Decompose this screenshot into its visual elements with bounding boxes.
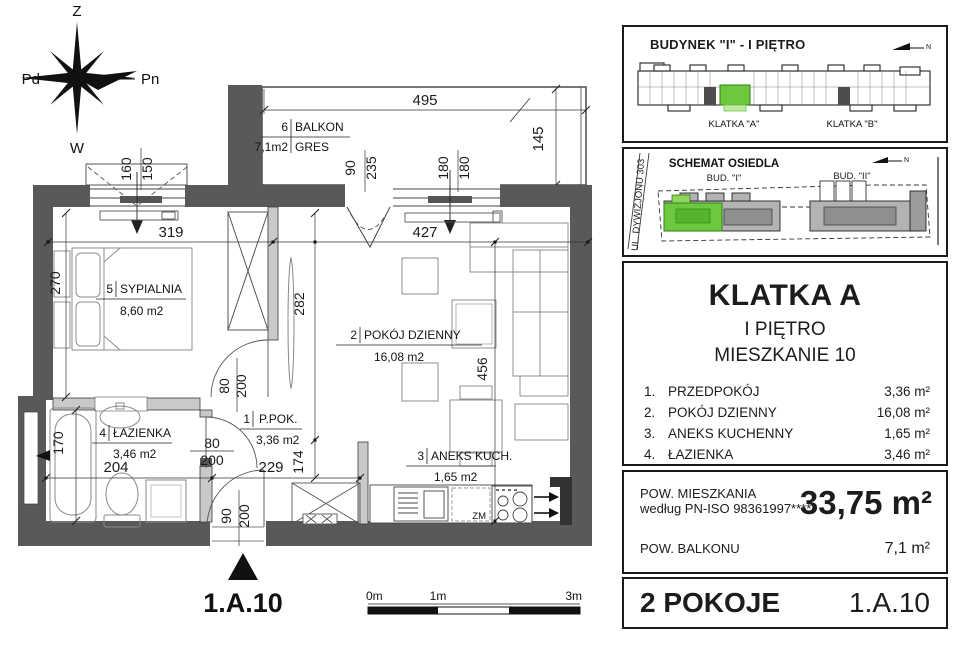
room-name: ANEKS KUCHENNY <box>668 423 884 444</box>
room-no: 1. <box>644 381 668 402</box>
building-title: BUDYNEK "I" - I PIĘTRO <box>650 37 805 52</box>
stairwell-b <box>838 87 850 105</box>
north-arrow-icon: N <box>890 39 932 58</box>
dim-balcony-width: 495 <box>412 92 437 109</box>
svg-text:160: 160 <box>118 157 134 181</box>
rooms-count: 2 POKOJE <box>640 587 780 619</box>
dim-entry-90: 90 <box>218 508 234 524</box>
balcony-area-value: 7,1 m² <box>885 540 930 558</box>
svg-text:P.POK.: P.POK. <box>259 412 297 426</box>
balcony-door-opening <box>345 184 500 208</box>
balcony-pillar <box>228 85 262 187</box>
room-area: 3,36 m² <box>884 381 930 402</box>
bud2-label: BUD. "II" <box>833 171 870 182</box>
highlighted-balcony <box>724 105 746 111</box>
svg-text:SYPIALNIA: SYPIALNIA <box>120 282 182 296</box>
dim-bath-door-200: 200 <box>200 452 224 468</box>
building-footprint-map: KLATKA "A" KLATKA "B" <box>632 57 938 133</box>
dim-270: 270 <box>47 271 63 295</box>
room-label-sypialnia: 5 SYPIALNIA 8,60 m2 <box>96 281 186 318</box>
svg-text:ŁAZIENKA: ŁAZIENKA <box>113 426 171 440</box>
svg-text:90: 90 <box>342 160 358 176</box>
dim-bedroom-door-80: 80 <box>216 378 232 394</box>
entrance-marker-icon <box>228 553 258 580</box>
scale-0m: 0m <box>366 589 383 603</box>
estate-section: SCHEMAT OSIEDLA N UL. DYWIZJONU 303 BUD.… <box>622 147 948 257</box>
stairwell-a <box>704 87 716 105</box>
room-list-item: 3. ANEKS KUCHENNY 1,65 m² <box>644 423 930 444</box>
svg-text:1: 1 <box>243 412 250 426</box>
estate-title: SCHEMAT OSIEDLA <box>669 158 779 170</box>
dim-229: 229 <box>258 459 283 476</box>
svg-text:150: 150 <box>139 157 155 181</box>
room-area: 3,46 m² <box>884 444 930 465</box>
bud2-shape <box>810 181 926 231</box>
dim-319: 319 <box>158 224 183 241</box>
compass-pd: Pd <box>22 71 40 88</box>
svg-text:5: 5 <box>106 282 113 296</box>
klatka-b-label: KLATKA "B" <box>827 119 878 130</box>
dim-204: 204 <box>103 459 128 476</box>
unit-section: KLATKA A I PIĘTRO MIESZKANIE 10 1. PRZED… <box>622 261 948 466</box>
unit-code: 1.A.10 <box>849 587 930 619</box>
scale-1m: 1m <box>430 589 447 603</box>
room-label-aneks: 3 ANEKS KUCH. 1,65 m2 <box>406 448 512 484</box>
room-name: POKÓJ DZIENNY <box>668 402 877 423</box>
dim-balcony-depth: 145 <box>530 126 547 151</box>
bathroom-window-slot <box>24 412 38 504</box>
compass-w: W <box>70 140 85 157</box>
room-num: 6 <box>281 120 288 134</box>
floor-plan-drawing: Z W Pd Pn 495 145 6 BALKON 7,1m2 GRES <box>0 0 615 640</box>
room-no: 2. <box>644 402 668 423</box>
room-label-dzienny: 2 POKÓJ DZIENNY 16,08 m2 <box>336 327 482 364</box>
scale-bar: 0m 1m 3m <box>366 589 582 614</box>
apartment-number: 1.A.10 <box>203 588 283 618</box>
room-area: 1,65 m² <box>884 423 930 444</box>
svg-text:N: N <box>904 157 909 164</box>
dim-456: 456 <box>474 357 490 381</box>
unit-floor: I PIĘTRO <box>624 319 946 341</box>
svg-text:ANEKS KUCH.: ANEKS KUCH. <box>431 449 512 463</box>
balcony: 495 145 6 BALKON 7,1m2 GRES <box>228 85 590 189</box>
svg-text:8,60 m2: 8,60 m2 <box>120 304 164 318</box>
room-label-lazienka: 4 ŁAZIENKA 3,46 m2 <box>92 425 172 461</box>
areas-section: POW. MIESZKANIA według PN-ISO 98361997**… <box>622 470 948 574</box>
apartment-area-value: 33,75 m² <box>800 484 932 522</box>
room-no: 4. <box>644 444 668 465</box>
footer-section: 2 POKOJE 1.A.10 <box>622 577 948 629</box>
building-section: BUDYNEK "I" - I PIĘTRO N <box>622 25 948 143</box>
living-furniture <box>402 223 568 466</box>
north-arrow-icon: N <box>872 157 909 164</box>
scale-3m: 3m <box>565 589 582 603</box>
dim-174: 174 <box>290 450 306 474</box>
partition-walls <box>53 207 368 524</box>
balcony-area-label: POW. BALKONU <box>640 541 740 556</box>
room-list-item: 4. ŁAZIENKA 3,46 m² <box>644 444 930 465</box>
bud1-shape <box>664 193 780 231</box>
svg-text:16,08 m2: 16,08 m2 <box>374 350 424 364</box>
room-area: 7,1m2 <box>255 140 289 154</box>
svg-text:POKÓJ DZIENNY: POKÓJ DZIENNY <box>364 327 461 342</box>
dim-bedroom-door-200: 200 <box>233 374 249 398</box>
dim-282: 282 <box>291 292 307 316</box>
svg-text:4: 4 <box>99 426 106 440</box>
kitchen: ZM <box>370 477 572 525</box>
bud1-label: BUD. "I" <box>707 173 742 184</box>
svg-text:180: 180 <box>456 156 472 180</box>
svg-text:3: 3 <box>417 449 424 463</box>
dim-bath-door-80: 80 <box>204 435 220 451</box>
svg-text:N: N <box>926 44 931 51</box>
room-floor: GRES <box>295 140 329 154</box>
highlighted-unit <box>720 85 750 105</box>
unit-apartment: MIESZKANIE 10 <box>624 345 946 367</box>
dim-170: 170 <box>50 431 66 455</box>
hall-furniture <box>292 483 360 524</box>
compass-rose: Z W Pd Pn <box>21 3 159 157</box>
apartment-area-norm: według PN-ISO 98361997***** <box>640 501 816 516</box>
compass-pn: Pn <box>141 71 159 88</box>
room-no: 3. <box>644 423 668 444</box>
svg-text:3,36 m2: 3,36 m2 <box>256 433 300 447</box>
room-list-item: 2. POKÓJ DZIENNY 16,08 m² <box>644 402 930 423</box>
svg-text:180: 180 <box>435 156 451 180</box>
room-name: ŁAZIENKA <box>668 444 884 465</box>
estate-map: SCHEMAT OSIEDLA N UL. DYWIZJONU 303 BUD.… <box>624 149 946 253</box>
svg-text:235: 235 <box>363 156 379 180</box>
svg-text:2: 2 <box>350 328 357 342</box>
compass-z: Z <box>72 3 81 20</box>
street-label: UL. DYWIZJONU 303 <box>630 158 647 251</box>
room-area: 16,08 m² <box>877 402 930 423</box>
klatka-a-label: KLATKA "A" <box>709 119 760 130</box>
floor-plan: Z W Pd Pn 495 145 6 BALKON 7,1m2 GRES <box>0 0 615 640</box>
dim-427: 427 <box>412 224 437 241</box>
dishwasher-label: ZM <box>472 511 486 522</box>
dim-entry-200: 200 <box>236 504 252 528</box>
unit-title: KLATKA A <box>624 279 946 313</box>
svg-text:1,65 m2: 1,65 m2 <box>434 470 478 484</box>
room-name: BALKON <box>295 120 344 134</box>
room-name: PRZEDPOKÓJ <box>668 381 884 402</box>
apartment-area-label: POW. MIESZKANIA <box>640 486 816 501</box>
room-list-item: 1. PRZEDPOKÓJ 3,36 m² <box>644 381 930 402</box>
